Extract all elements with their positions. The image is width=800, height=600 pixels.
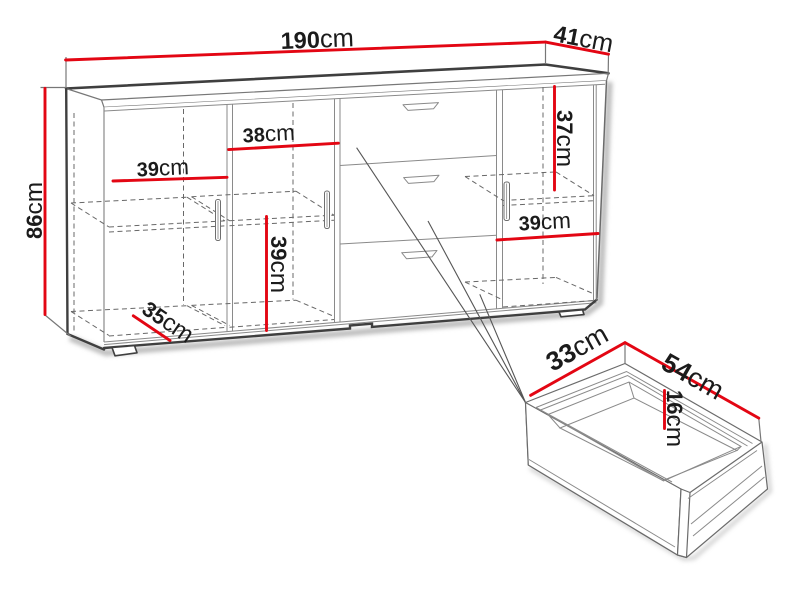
svg-text:190cm: 190cm bbox=[280, 24, 354, 55]
svg-text:39cm: 39cm bbox=[265, 236, 292, 293]
svg-text:39cm: 39cm bbox=[136, 154, 189, 181]
svg-text:16cm: 16cm bbox=[661, 390, 688, 447]
svg-text:37cm: 37cm bbox=[551, 110, 578, 167]
svg-text:86cm: 86cm bbox=[21, 182, 48, 239]
